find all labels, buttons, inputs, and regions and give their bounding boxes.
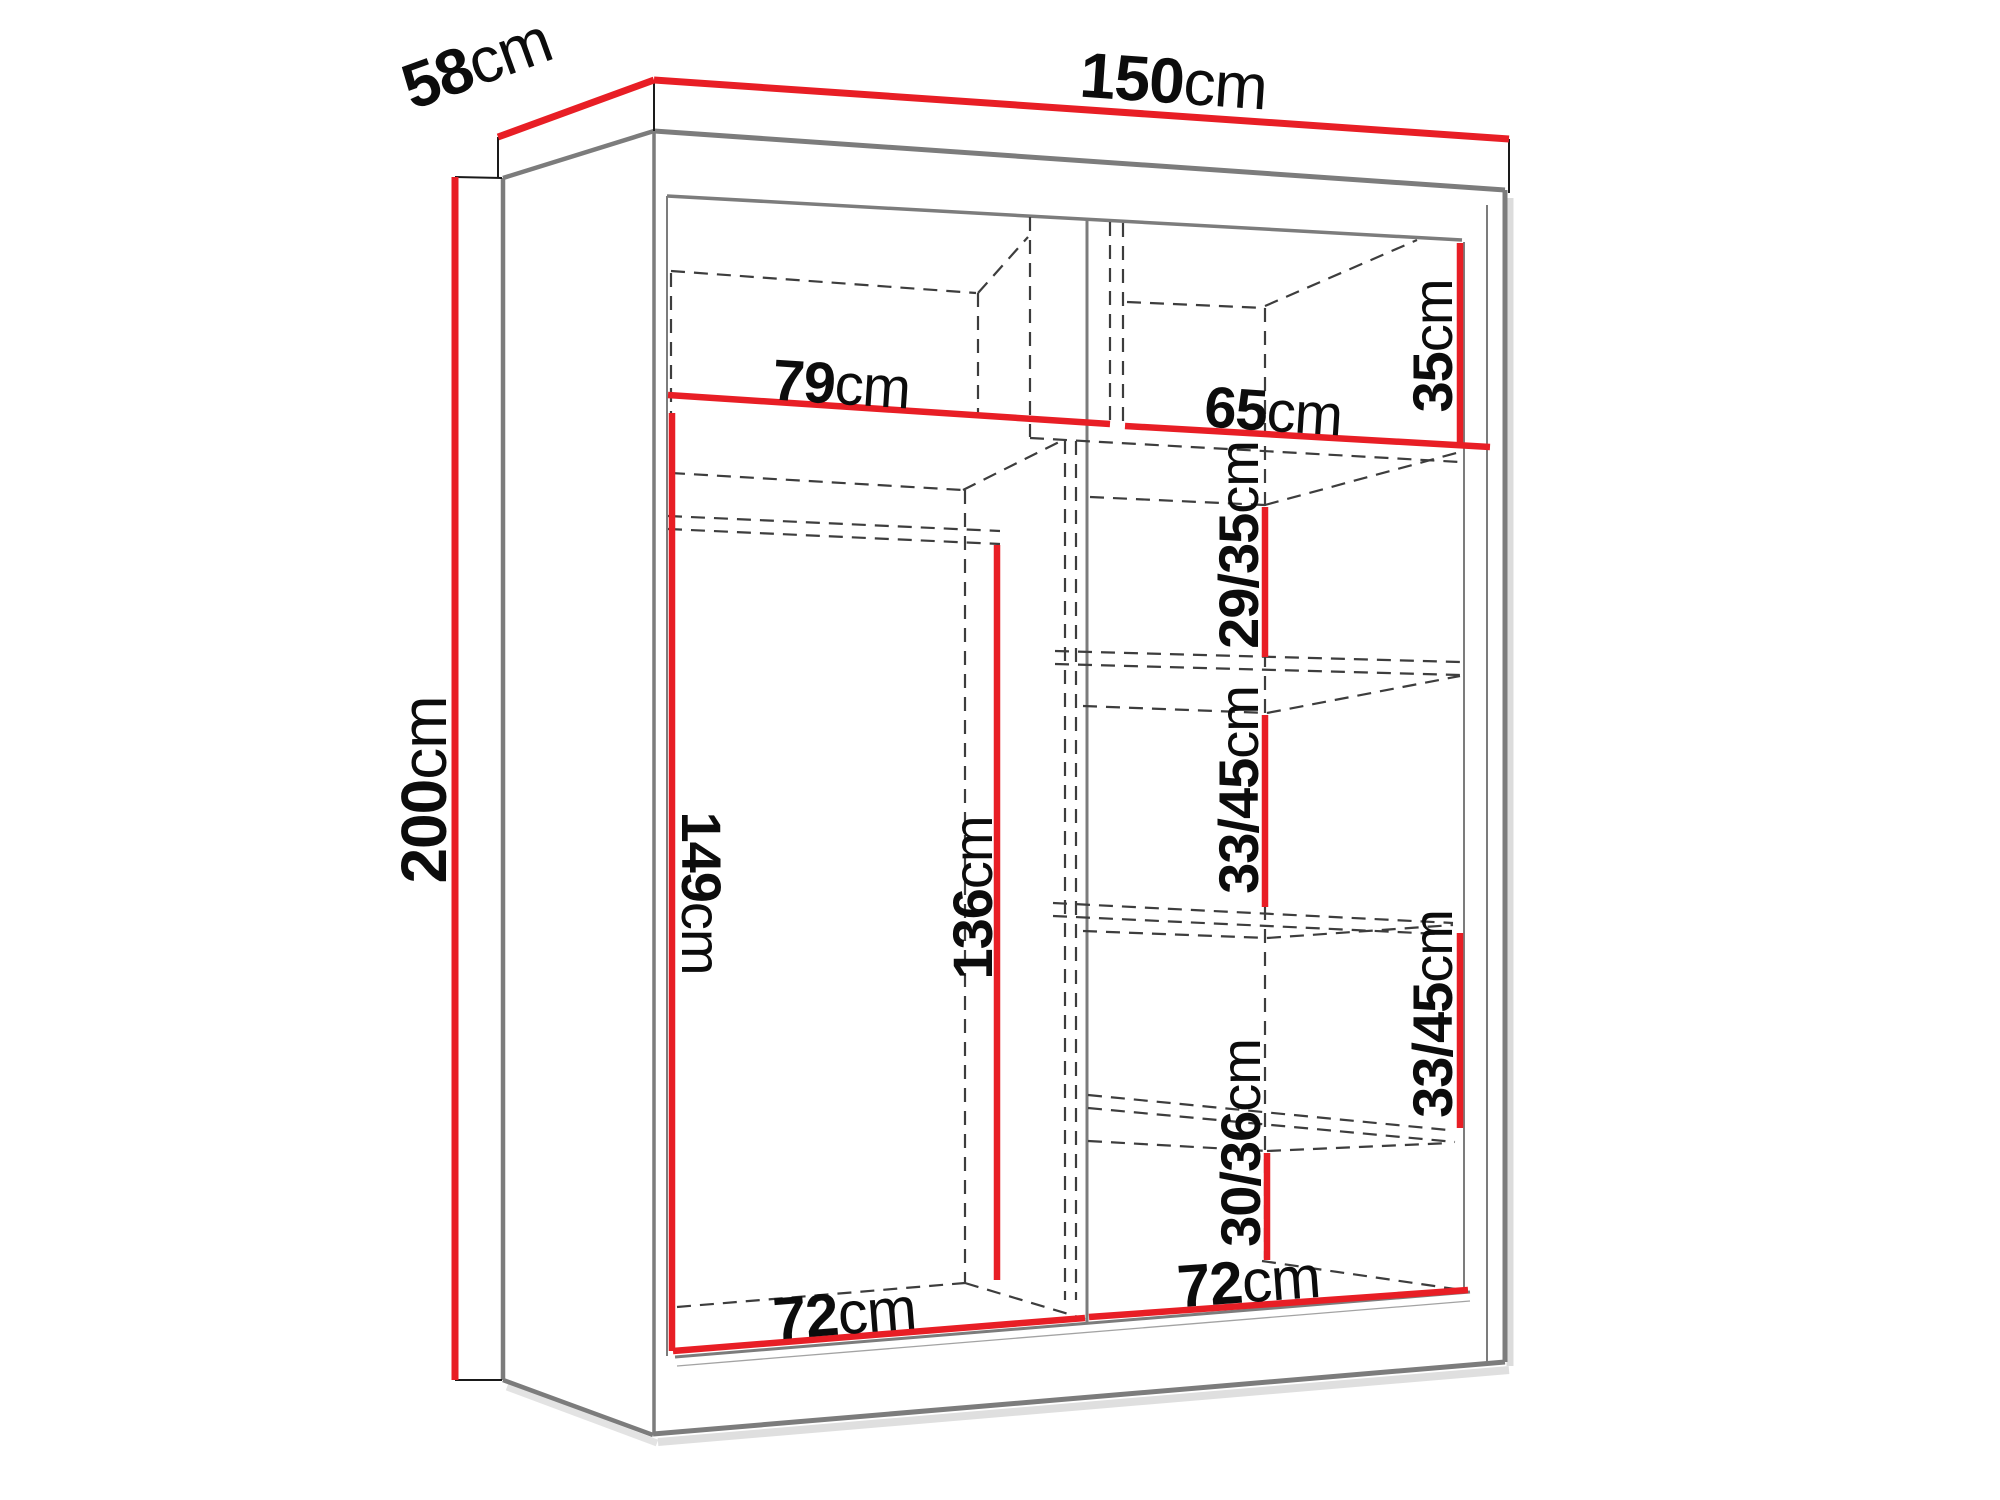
shelf4-depth-line: [1267, 1143, 1450, 1151]
right-compartment-back-top-edge: [1127, 302, 1265, 308]
left-inner-width-label: 72cm: [771, 1274, 919, 1352]
side-panel-top-edge: [503, 131, 654, 178]
dimension-lines: [455, 80, 1509, 1380]
shadow-bottom-left: [507, 1387, 657, 1443]
left-compartment-depth-line: [963, 440, 1063, 490]
shelf-gap-upper-label: 29/35cm: [1207, 441, 1270, 649]
right-inner-width-label: 72cm: [1175, 1243, 1322, 1320]
shadows: [507, 198, 1510, 1443]
shelf-gap-lower-label: 33/45cm: [1401, 910, 1464, 1118]
right-compartment-depth-line: [1265, 240, 1417, 306]
top-front-edge: [654, 131, 1505, 190]
dimension-ticks: [455, 80, 1509, 1380]
shelf2-depth-line: [1267, 676, 1460, 713]
shelf3-back-edge-a: [1053, 903, 1453, 923]
hanging-rail-front-line: [668, 516, 1000, 531]
diagram-canvas: 150cm 58cm 200cm 79cm 65cm 35cm 29/35cm …: [0, 0, 2000, 1500]
left-compartment-back-top-edge: [671, 473, 963, 490]
depth-dimension-line: [498, 80, 654, 137]
depth-label: 58cm: [393, 3, 561, 123]
hanging-rail-back-line: [668, 529, 1000, 544]
shelf3-front-edge: [1083, 931, 1267, 938]
top-right-width-label: 65cm: [1202, 375, 1344, 449]
left-floor-depth-line: [965, 1283, 1085, 1319]
cabinet-edges: [503, 131, 1505, 1435]
shelf-gap-middle-label: 33/45cm: [1207, 686, 1270, 894]
interior-top-edge: [667, 196, 1462, 240]
shelf-gap-bottom-label: 30/36cm: [1209, 1039, 1272, 1247]
bottom-front-edge: [653, 1362, 1505, 1434]
height-label: 200cm: [388, 696, 460, 883]
hanging-height-label: 136cm: [941, 816, 1004, 979]
top-left-width-label: 79cm: [770, 348, 912, 422]
shelf1-depth-line: [1265, 452, 1460, 505]
top-shelf-height-label: 35cm: [1401, 280, 1464, 413]
top-compartment-back-edge: [671, 271, 976, 293]
shelf2-back-edge-a: [1055, 651, 1460, 662]
left-inner-height-label: 149cm: [670, 811, 733, 974]
shadow-bottom: [658, 1370, 1509, 1442]
width-label: 150cm: [1078, 39, 1270, 124]
side-panel-bottom-edge: [503, 1380, 653, 1435]
height-tick-top: [455, 177, 502, 178]
wardrobe-dimension-diagram: 150cm 58cm 200cm 79cm 65cm 35cm 29/35cm …: [0, 0, 2000, 1500]
top-compartment-depth-line: [978, 237, 1028, 293]
shelf2-back-edge-b: [1055, 664, 1460, 675]
